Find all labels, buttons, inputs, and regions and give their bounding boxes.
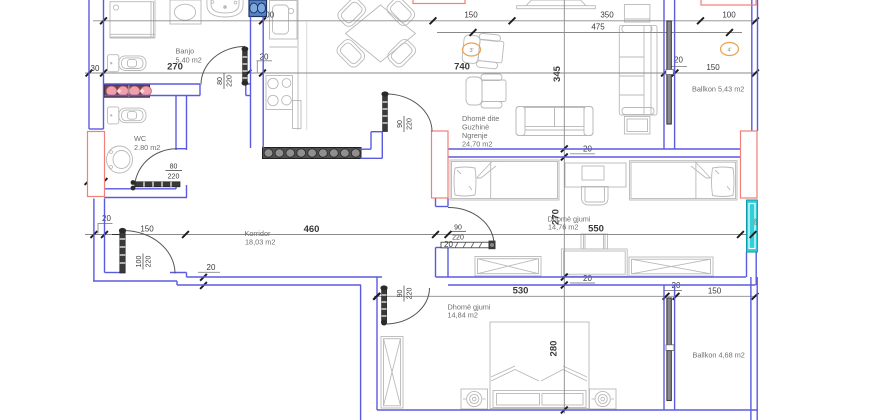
svg-text:30: 30 (91, 64, 100, 73)
svg-text:460: 460 (304, 224, 320, 235)
svg-text:220: 220 (168, 174, 180, 181)
svg-text:Ballkon 5,43 m2: Ballkon 5,43 m2 (692, 85, 744, 94)
svg-text:18,03 m2: 18,03 m2 (245, 238, 275, 247)
svg-text:90: 90 (397, 290, 404, 298)
svg-text:20: 20 (102, 214, 111, 223)
svg-text:2.80 m2: 2.80 m2 (134, 143, 160, 152)
svg-text:150: 150 (708, 287, 722, 296)
svg-text:20: 20 (583, 274, 592, 283)
svg-text:220: 220 (452, 235, 464, 242)
svg-text:530: 530 (513, 286, 529, 297)
svg-text:345: 345 (552, 65, 563, 82)
svg-text:80: 80 (217, 77, 224, 85)
svg-text:220: 220 (227, 75, 234, 87)
svg-text:3': 3' (469, 48, 473, 54)
svg-text:80: 80 (170, 164, 178, 171)
svg-text:24,70 m2: 24,70 m2 (462, 140, 492, 149)
svg-text:20: 20 (207, 263, 216, 272)
svg-text:14,84 m2: 14,84 m2 (448, 311, 478, 320)
svg-text:150: 150 (140, 225, 154, 234)
svg-text:150: 150 (464, 11, 478, 20)
svg-text:90: 90 (454, 225, 462, 232)
svg-text:150: 150 (706, 63, 720, 72)
svg-text:90: 90 (397, 120, 404, 128)
svg-text:WC: WC (134, 134, 146, 143)
svg-text:220: 220 (407, 118, 414, 130)
svg-text:280: 280 (549, 341, 560, 357)
svg-text:740: 740 (454, 62, 470, 73)
svg-text:350: 350 (600, 11, 614, 20)
svg-text:20: 20 (674, 56, 683, 65)
svg-text:475: 475 (591, 23, 605, 32)
svg-text:100: 100 (722, 11, 736, 20)
svg-text:14,76 m2: 14,76 m2 (548, 223, 578, 232)
svg-text:100: 100 (136, 256, 143, 268)
svg-text:220: 220 (146, 256, 153, 268)
svg-text:220: 220 (407, 288, 414, 300)
svg-text:5.40 m2: 5.40 m2 (176, 56, 202, 65)
svg-text:20: 20 (260, 53, 269, 62)
svg-text:220: 220 (753, 218, 758, 225)
svg-text:20: 20 (444, 240, 453, 249)
svg-text:Banjo: Banjo (176, 47, 195, 56)
svg-text:Ballkon 4,68 m2: Ballkon 4,68 m2 (693, 351, 745, 360)
svg-text:4': 4' (727, 48, 731, 54)
svg-text:550: 550 (588, 224, 604, 235)
